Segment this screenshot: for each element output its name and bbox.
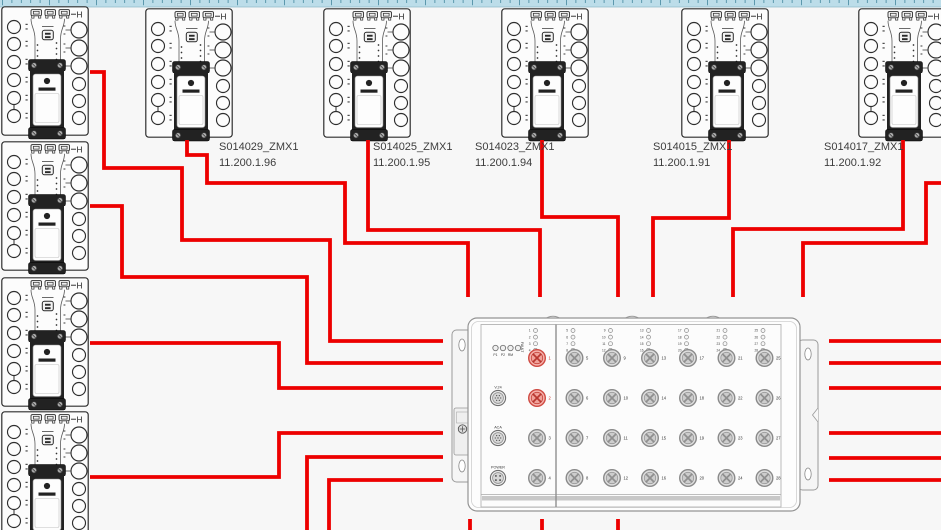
- zmx1-device-left-2[interactable]: H: [2, 142, 88, 274]
- port-led: [609, 342, 613, 346]
- device-corner-mark: H: [757, 13, 763, 22]
- module-logo-icon: [44, 349, 50, 355]
- port-number: 12: [624, 476, 629, 481]
- device-label[interactable]: S014017_ZMX1 11.200.1.92: [824, 140, 904, 171]
- module-logo-icon: [44, 78, 50, 84]
- port-led: [571, 335, 575, 339]
- status-led: [500, 345, 505, 350]
- zmx-module: [29, 465, 66, 530]
- zmx1-device-corner[interactable]: H: [2, 7, 88, 139]
- zmx1-device-top-6[interactable]: H: [859, 9, 941, 141]
- diagram-stage: HHHHHHHHHP1P2RMFAULTV.24ACAPOWER12341234…: [0, 0, 941, 530]
- service-port-icon: [186, 32, 197, 41]
- port-number: 13: [662, 356, 667, 361]
- port-led-number: 15: [640, 342, 644, 346]
- service-port-icon: [42, 165, 53, 174]
- zmx-module: [529, 62, 566, 142]
- port-led-number: 20: [678, 349, 682, 353]
- device-label[interactable]: S014015_ZMX1 11.200.1.91: [653, 140, 733, 171]
- zmx-module: [29, 331, 66, 411]
- port-number: 22: [738, 396, 743, 401]
- device-name: S014015_ZMX1: [653, 140, 733, 156]
- module-logo-icon: [44, 483, 50, 489]
- port-led: [723, 329, 727, 333]
- zmx1-device-left-4[interactable]: H: [2, 412, 88, 530]
- device-corner-mark: H: [77, 416, 83, 425]
- service-port-icon: [42, 30, 53, 39]
- port-led: [534, 342, 538, 346]
- port-number: 14: [662, 396, 667, 401]
- port-led: [685, 335, 689, 339]
- connector-v24[interactable]: [490, 390, 505, 405]
- service-port-icon: [899, 32, 910, 41]
- port-number: 15: [662, 436, 667, 441]
- port-number: 24: [738, 476, 743, 481]
- network-cable-6[interactable]: [329, 480, 443, 530]
- port-number: 19: [700, 436, 705, 441]
- device-corner-mark: H: [77, 146, 83, 155]
- module-logo-icon: [724, 80, 730, 86]
- port-led-number: 14: [640, 335, 644, 339]
- connector-label: V.24: [494, 386, 501, 390]
- status-led-label: P1: [493, 353, 497, 357]
- port-led-number: 5: [566, 329, 568, 333]
- port-led: [571, 342, 575, 346]
- device-corner-mark: H: [577, 13, 583, 22]
- port-number: 17: [700, 356, 705, 361]
- device-ip: 11.200.1.94: [475, 156, 555, 172]
- service-port-icon: [542, 32, 553, 41]
- port-led: [647, 329, 651, 333]
- status-led-label: RM: [508, 353, 513, 357]
- device-ip: 11.200.1.95: [373, 156, 453, 172]
- device-ip: 11.200.1.96: [219, 156, 299, 172]
- module-logo-icon: [544, 80, 550, 86]
- status-led: [515, 345, 520, 350]
- port-led-number: 1: [529, 329, 531, 333]
- connector-label: POWER: [491, 466, 505, 470]
- zmx-module: [29, 195, 66, 275]
- status-led: [493, 345, 498, 350]
- port-led: [534, 329, 538, 333]
- port-led-number: 28: [754, 349, 758, 353]
- port-led-number: 25: [754, 329, 758, 333]
- port-led-number: 18: [678, 335, 682, 339]
- port-led-number: 26: [754, 335, 758, 339]
- port-led: [647, 342, 651, 346]
- port-led-number: 16: [640, 349, 644, 353]
- device-corner-mark: H: [77, 11, 83, 20]
- module-logo-icon: [901, 80, 907, 86]
- module-logo-icon: [44, 213, 50, 219]
- network-cable-4[interactable]: [90, 433, 443, 477]
- port-led: [723, 335, 727, 339]
- status-led-label: P2: [501, 353, 505, 357]
- connector-aca[interactable]: [490, 430, 505, 445]
- port-led: [723, 342, 727, 346]
- zmx-module: [709, 62, 746, 142]
- port-led-number: 27: [754, 342, 758, 346]
- device-corner-mark: H: [221, 13, 227, 22]
- port-number: 20: [700, 476, 705, 481]
- module-logo-icon: [188, 80, 194, 86]
- port-led-number: 19: [678, 342, 682, 346]
- service-port-icon: [42, 301, 53, 310]
- device-label[interactable]: S014025_ZMX1 11.200.1.95: [373, 140, 453, 171]
- status-led: [508, 345, 513, 350]
- service-port-icon: [722, 32, 733, 41]
- module-logo-icon: [366, 80, 372, 86]
- port-number: 26: [776, 396, 781, 401]
- port-led-number: 12: [602, 349, 606, 353]
- port-led: [534, 335, 538, 339]
- device-name: S014023_ZMX1: [475, 140, 555, 156]
- port-led-number: 22: [716, 335, 720, 339]
- port-led-number: 10: [602, 335, 606, 339]
- network-cable-12[interactable]: [803, 183, 941, 297]
- device-label[interactable]: S014029_ZMX1 11.200.1.96: [219, 140, 299, 171]
- zmx1-device-top-4[interactable]: H: [502, 9, 588, 141]
- device-ip: 11.200.1.91: [653, 156, 733, 172]
- service-port-icon: [364, 32, 375, 41]
- port-led-number: 21: [716, 329, 720, 333]
- connector-power[interactable]: [490, 470, 505, 485]
- port-led-number: 11: [602, 342, 606, 346]
- port-led: [685, 329, 689, 333]
- port-led: [609, 335, 613, 339]
- zmx1-device-left-3[interactable]: H: [2, 278, 88, 410]
- port-led: [761, 342, 765, 346]
- device-name: S014025_ZMX1: [373, 140, 453, 156]
- diagram-canvas: HHHHHHHHHP1P2RMFAULTV.24ACAPOWER12341234…: [0, 0, 941, 530]
- status-led-label-fault: FAULT: [520, 342, 524, 352]
- zmx-module: [173, 62, 210, 142]
- device-name: S014029_ZMX1: [219, 140, 299, 156]
- port-led-number: 23: [716, 342, 720, 346]
- port-led-number: 24: [716, 349, 720, 353]
- port-number: 11: [624, 436, 629, 441]
- service-port-icon: [42, 435, 53, 444]
- port-led: [647, 335, 651, 339]
- connector-label: ACA: [494, 426, 502, 430]
- port-number: 23: [738, 436, 743, 441]
- device-label[interactable]: S014023_ZMX1 11.200.1.94: [475, 140, 555, 171]
- port-number: 27: [776, 436, 781, 441]
- device-ip: 11.200.1.92: [824, 156, 904, 172]
- m12-switch[interactable]: P1P2RMFAULTV.24ACAPOWER12341234567856789…: [452, 316, 818, 511]
- port-number: 28: [776, 476, 781, 481]
- horizontal-ruler: [0, 0, 941, 7]
- port-led: [761, 335, 765, 339]
- device-corner-mark: H: [399, 13, 405, 22]
- port-led-number: 2: [529, 335, 531, 339]
- zmx1-device-top-5[interactable]: H: [682, 9, 768, 141]
- port-led-number: 7: [566, 342, 568, 346]
- port-led-number: 13: [640, 329, 644, 333]
- network-cable-3[interactable]: [90, 343, 443, 388]
- port-led-number: 3: [529, 342, 531, 346]
- port-number: 10: [624, 396, 629, 401]
- device-corner-mark: H: [77, 282, 83, 291]
- zmx1-device-top-2[interactable]: H: [146, 9, 232, 141]
- port-led-number: 6: [566, 335, 568, 339]
- port-number: 18: [700, 396, 705, 401]
- port-led: [761, 329, 765, 333]
- port-led: [609, 329, 613, 333]
- port-led: [685, 342, 689, 346]
- device-name: S014017_ZMX1: [824, 140, 904, 156]
- port-led-number: 9: [604, 329, 606, 333]
- port-number: 25: [776, 356, 781, 361]
- port-led-number: 17: [678, 329, 682, 333]
- device-corner-mark: H: [934, 13, 940, 22]
- zmx1-device-top-3[interactable]: H: [324, 9, 410, 141]
- port-number: 21: [738, 356, 743, 361]
- zmx-module: [29, 60, 66, 140]
- zmx-module: [886, 62, 923, 142]
- port-led: [571, 329, 575, 333]
- port-number: 16: [662, 476, 667, 481]
- zmx-module: [351, 62, 388, 142]
